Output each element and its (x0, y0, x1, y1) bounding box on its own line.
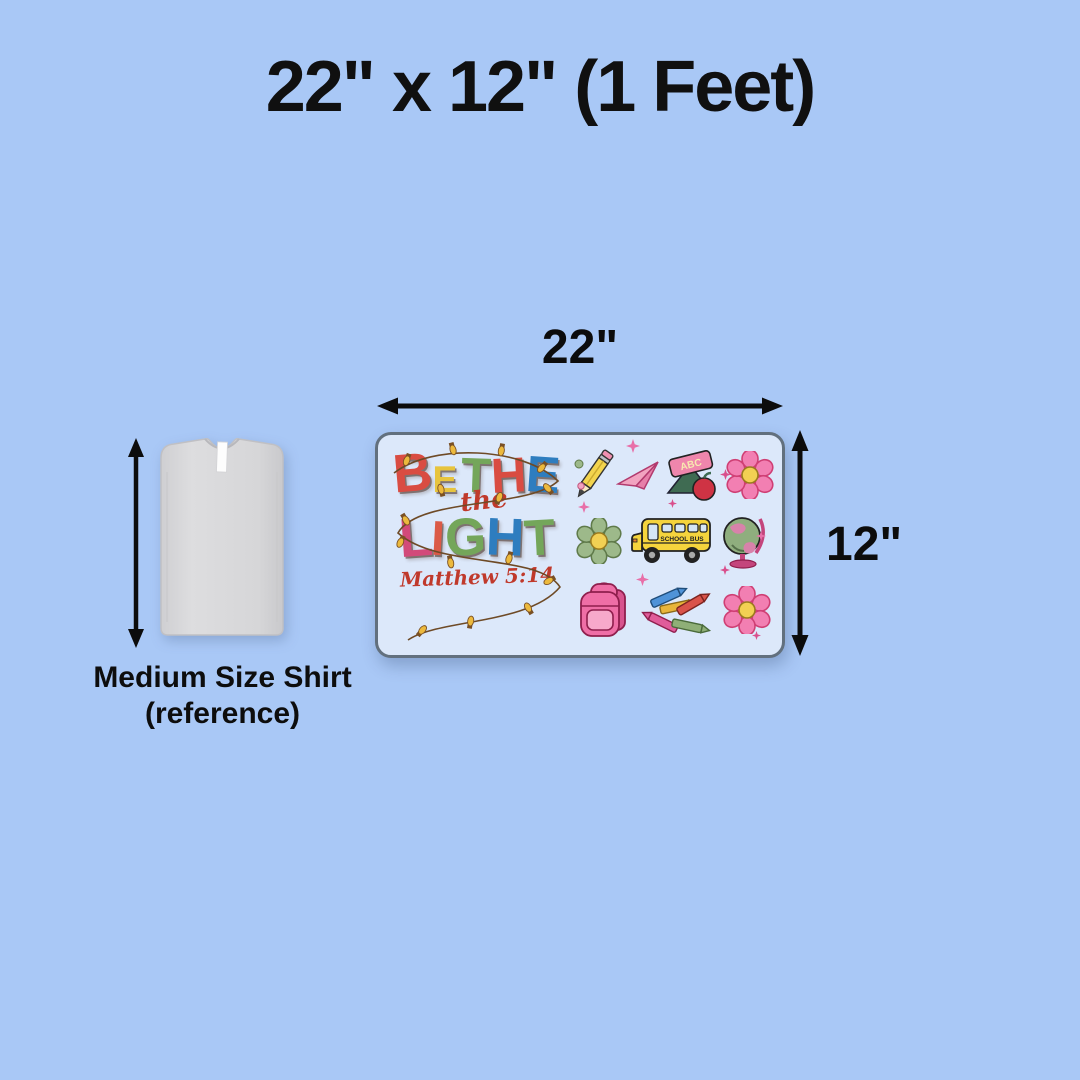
shirt-caption-line1: Medium Size Shirt (55, 660, 390, 696)
verse-text: Matthew 5:14 (384, 562, 571, 592)
crayons-icon (640, 582, 716, 638)
height-arrow (789, 430, 811, 656)
letter: H (485, 513, 525, 563)
icon-row-1: ABC (572, 446, 774, 504)
letter: G (444, 513, 487, 563)
width-dimension-label: 22" (375, 324, 785, 372)
abc-book-apple-icon: ABC (660, 447, 726, 503)
icon-row-2: SCHOOL BUS (572, 513, 774, 569)
svg-text:SCHOOL BUS: SCHOOL BUS (660, 536, 704, 543)
pink-flower-icon (726, 451, 774, 499)
width-arrow (377, 395, 783, 417)
letter: T (523, 515, 557, 563)
green-flower-icon (576, 518, 622, 564)
shirt-image (151, 432, 293, 642)
design-panel: B E T H E the L I G H T Matthew 5:14 (375, 432, 785, 658)
shirt-height-arrow (125, 438, 147, 648)
paper-plane-icon (616, 460, 660, 490)
icon-row-3 (572, 578, 774, 642)
height-dimension-label: 12" (826, 521, 902, 569)
backpack-icon (575, 578, 633, 642)
shirt-caption: Medium Size Shirt (reference) (55, 660, 390, 732)
word-light: L I G H T (384, 512, 570, 563)
size-guide-graphic: 22" x 12" (1 Feet) 22" 12" B E T H E the… (0, 0, 1080, 1080)
size-title: 22" x 12" (1 Feet) (0, 48, 1080, 127)
be-the-light-artwork: B E T H E the L I G H T Matthew 5:14 (378, 435, 570, 655)
school-icons: ABC (570, 435, 782, 655)
letter: L (397, 511, 434, 564)
pencil-icon (572, 446, 616, 504)
pink-flower-icon (723, 586, 771, 634)
shirt-caption-line2: (reference) (55, 696, 390, 732)
globe-icon (720, 513, 770, 569)
school-bus-icon: SCHOOL BUS (630, 515, 712, 567)
